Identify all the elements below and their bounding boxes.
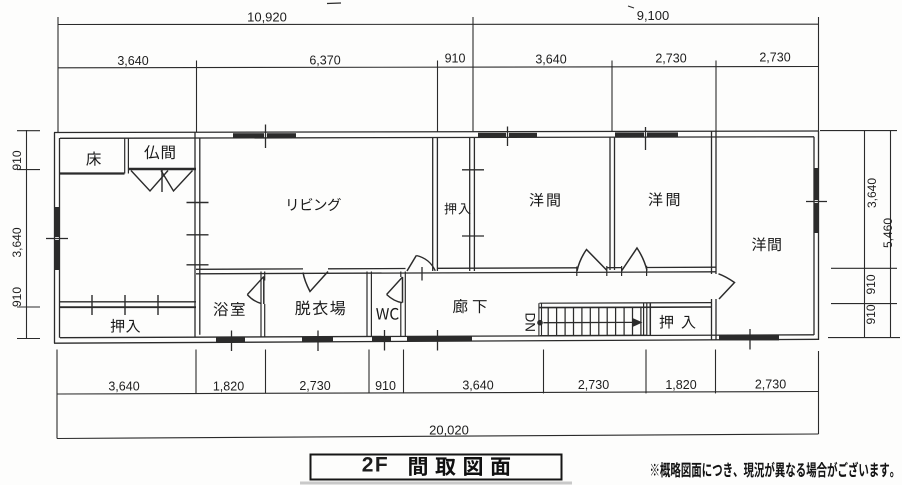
svg-text:3,640: 3,640	[462, 379, 493, 393]
svg-text:2,730: 2,730	[578, 378, 609, 392]
svg-text:910: 910	[10, 150, 24, 170]
svg-text:9,100: 9,100	[637, 8, 670, 23]
svg-text:1,820: 1,820	[213, 379, 244, 393]
svg-text:5,460: 5,460	[881, 218, 895, 248]
svg-text:2,730: 2,730	[655, 52, 686, 66]
svg-text:3,640: 3,640	[865, 178, 879, 208]
svg-text:910: 910	[10, 287, 24, 307]
svg-text:910: 910	[445, 52, 466, 66]
svg-text:3,640: 3,640	[108, 380, 139, 394]
svg-text:2,730: 2,730	[299, 379, 330, 393]
svg-text:2F: 2F	[362, 454, 390, 477]
svg-text:2,730: 2,730	[755, 377, 786, 391]
svg-text:2,730: 2,730	[759, 51, 790, 65]
svg-text:910: 910	[375, 379, 396, 393]
svg-text:910: 910	[864, 274, 878, 294]
svg-text:10,920: 10,920	[247, 10, 287, 25]
svg-text:6,370: 6,370	[309, 53, 340, 67]
svg-text:910: 910	[864, 304, 878, 324]
svg-text:3,640: 3,640	[117, 54, 148, 68]
svg-text:20,020: 20,020	[429, 423, 469, 438]
svg-text:1,820: 1,820	[665, 378, 696, 392]
svg-text:3,640: 3,640	[10, 227, 24, 257]
svg-text:3,640: 3,640	[535, 53, 566, 67]
svg-text:DN: DN	[523, 313, 538, 333]
